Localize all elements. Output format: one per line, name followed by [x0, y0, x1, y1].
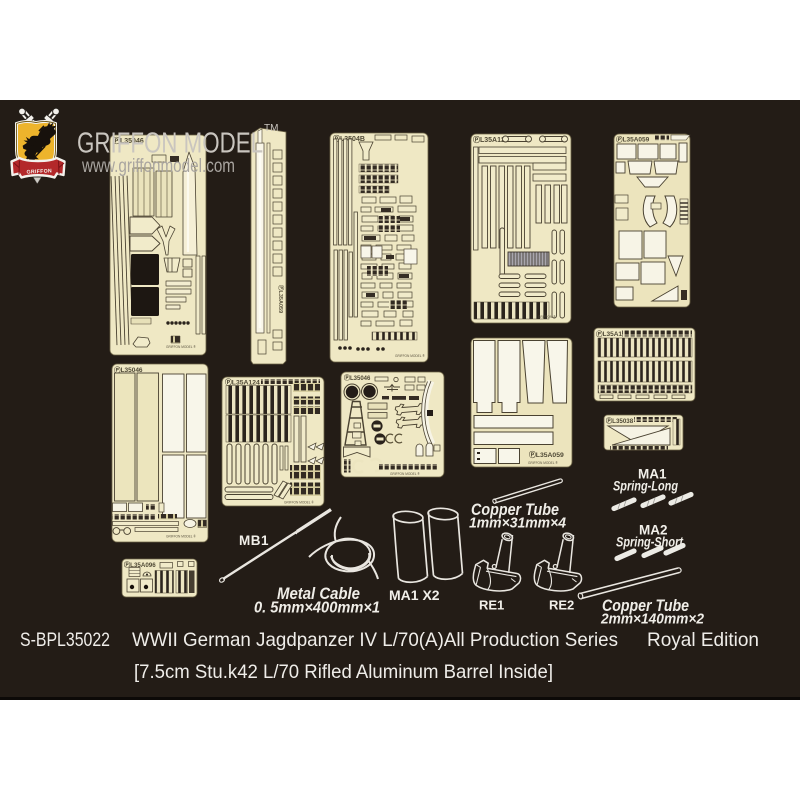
svg-text:RE2: RE2 — [549, 598, 574, 613]
svg-text:Royal Edition: Royal Edition — [647, 629, 759, 651]
svg-text:Spring-Long: Spring-Long — [613, 479, 679, 494]
svg-text:GRIFFON MODEL ®: GRIFFON MODEL ® — [166, 345, 196, 349]
svg-text:GRIFFON MODEL ®: GRIFFON MODEL ® — [284, 501, 314, 505]
svg-text:1mm×31mm×4: 1mm×31mm×4 — [469, 515, 567, 532]
svg-text:ⓅL35038: ⓅL35038 — [606, 417, 634, 425]
svg-text:ⓅL35A059: ⓅL35A059 — [529, 450, 564, 459]
svg-text:ⓅL35A124: ⓅL35A124 — [225, 378, 260, 387]
svg-text:GRIFFON ®: GRIFFON ® — [538, 315, 556, 319]
svg-text:GRIFFON MODEL ®: GRIFFON MODEL ® — [166, 535, 196, 539]
svg-text:GRIFFON MODEL ®: GRIFFON MODEL ® — [528, 461, 558, 465]
svg-text:www.griffonmodel.com: www.griffonmodel.com — [81, 155, 235, 177]
svg-text:ⓅL35A059: ⓅL35A059 — [616, 135, 650, 144]
svg-text:[7.5cm Stu.k42 L/70 Rifled Alu: [7.5cm Stu.k42 L/70 Rifled Aluminum Barr… — [134, 662, 553, 683]
svg-text:ⓅL35A059: ⓅL35A059 — [277, 285, 285, 313]
svg-text:GRIFFON MODEL ®: GRIFFON MODEL ® — [395, 354, 425, 358]
svg-text:MA1 X2: MA1 X2 — [389, 587, 440, 603]
svg-text:WWII German Jagdpanzer IV L/70: WWII German Jagdpanzer IV L/70(A)All Pro… — [132, 629, 618, 651]
svg-text:ⓅL35046: ⓅL35046 — [344, 374, 371, 382]
svg-text:MB1: MB1 — [239, 533, 269, 548]
svg-text:TM: TM — [264, 123, 278, 134]
svg-text:RE1: RE1 — [479, 598, 504, 613]
svg-text:GRIFFON MODEL ®: GRIFFON MODEL ® — [390, 472, 420, 476]
svg-text:S-BPL35022: S-BPL35022 — [20, 629, 110, 651]
svg-text:2mm×140mm×2: 2mm×140mm×2 — [600, 611, 705, 628]
svg-text:0. 5mm×400mm×1: 0. 5mm×400mm×1 — [254, 600, 380, 617]
